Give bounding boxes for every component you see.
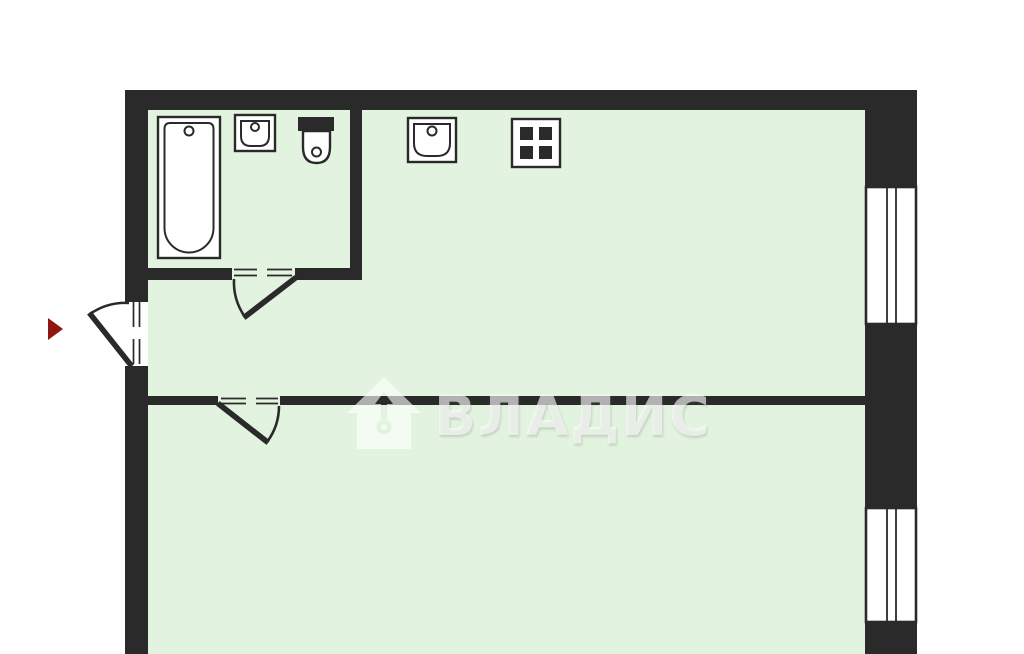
window-upper [866,187,916,324]
toilet-tank [298,117,334,131]
toilet-icon [298,117,334,163]
wall-left-upper [125,90,148,302]
wall-top [125,90,917,110]
room-floor [148,108,865,654]
wall-divider-left [146,396,218,405]
bathroom-sink-icon [235,115,275,151]
wall-divider-right [280,396,865,405]
wall-bathroom-bottom-left [146,268,232,280]
wall-right-bottom [865,620,917,654]
floor-plan-drawing [0,0,1024,654]
window-frame [866,187,916,324]
door-swing-arc [90,303,129,314]
door-leaf [91,315,130,364]
window-frame [866,508,916,622]
entrance-arrow-icon [48,318,63,340]
wall-left-lower [125,366,148,654]
stove-icon [512,119,560,167]
wall-bathroom-bottom-right [295,268,362,280]
window-lower [866,508,916,622]
wall-bathroom-right [350,108,362,280]
wall-right-middle [865,322,917,509]
bathtub-icon [158,117,220,258]
entrance-door [90,302,140,364]
floor-plan: ВЛАДИС [0,0,1024,654]
kitchen-sink-icon [408,118,456,162]
wall-right-top [865,108,917,188]
